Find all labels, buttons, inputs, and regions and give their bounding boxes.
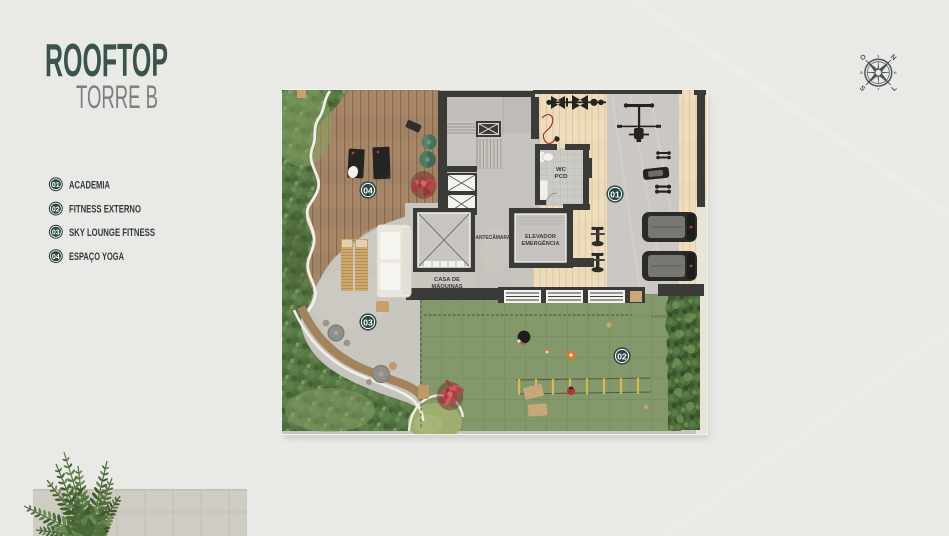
svg-text:01: 01 <box>610 189 620 199</box>
svg-text:FITNESS EXTERNO: FITNESS EXTERNO <box>69 204 141 216</box>
svg-text:M: M <box>894 71 897 75</box>
svg-text:TORRE B: TORRE B <box>76 79 158 115</box>
svg-text:ACADEMIA: ACADEMIA <box>69 179 110 191</box>
svg-text:02: 02 <box>52 206 60 213</box>
svg-text:WC: WC <box>556 167 566 173</box>
svg-text:SKY LOUNGE FITNESS: SKY LOUNGE FITNESS <box>69 227 155 239</box>
svg-text:03: 03 <box>52 230 60 237</box>
svg-text:04: 04 <box>363 185 373 195</box>
svg-text:ELEVADOR: ELEVADOR <box>525 234 556 240</box>
svg-text:02: 02 <box>617 351 627 361</box>
svg-text:CASA DE: CASA DE <box>434 277 460 283</box>
svg-text:PCD: PCD <box>555 174 568 180</box>
svg-text:ANTECÂMARA: ANTECÂMARA <box>476 234 511 241</box>
svg-text:04: 04 <box>52 254 60 261</box>
svg-text:ESPAÇO YOGA: ESPAÇO YOGA <box>69 251 124 263</box>
svg-text:03: 03 <box>363 317 373 327</box>
svg-text:POSIÇÃO GANGORRA: POSIÇÃO GANGORRA <box>651 314 690 319</box>
svg-text:MÁQUINAS: MÁQUINAS <box>432 283 463 290</box>
svg-text:EMERGÊNCIA: EMERGÊNCIA <box>522 239 560 247</box>
svg-text:01: 01 <box>52 182 60 189</box>
